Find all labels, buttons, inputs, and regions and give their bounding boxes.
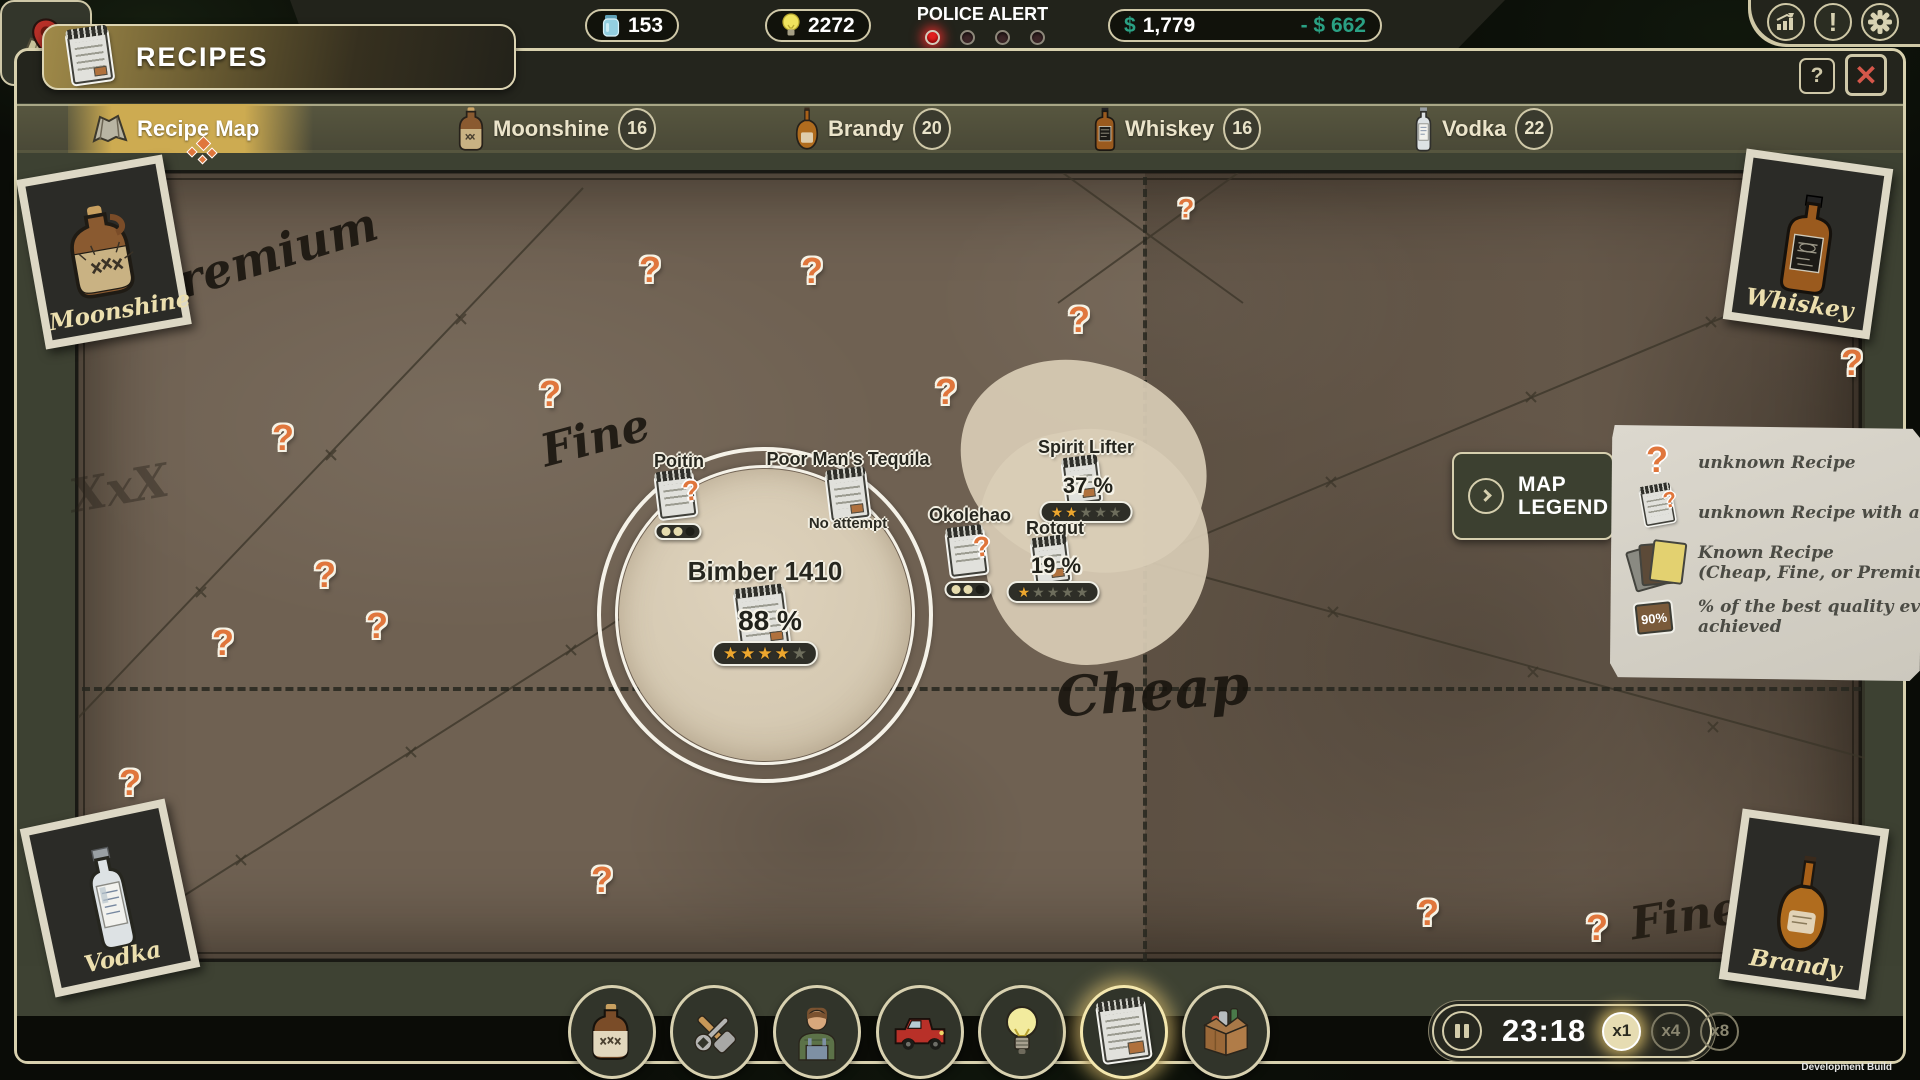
pause-button[interactable] [1442, 1011, 1482, 1051]
toolbar-production-button[interactable] [568, 985, 656, 1079]
toolbar-recipes-button[interactable] [1080, 985, 1168, 1079]
legend-item-text: % of the best quality ever [1698, 597, 1920, 617]
settings-button[interactable] [1861, 3, 1899, 41]
idea-count: 2272 [808, 14, 855, 38]
legend-item-text: (Cheap, Fine, or Premium) [1698, 563, 1920, 583]
clue-recipe-icon[interactable]: ? [946, 529, 987, 577]
window-title-banner: RECIPES [42, 24, 516, 90]
map-icon [92, 113, 128, 145]
unknown-recipe-marker[interactable]: ? [1417, 895, 1439, 931]
map-marker-cluster-icon [188, 136, 224, 166]
tab-label: Whiskey [1125, 116, 1214, 142]
clue-progress-okolehao [945, 581, 992, 598]
speed-x8-button[interactable]: x8 [1700, 1012, 1739, 1051]
unknown-recipe-marker[interactable]: ? [1068, 302, 1090, 338]
question-icon: ? [1646, 439, 1668, 481]
toolbar-staff-button[interactable] [773, 985, 861, 1079]
tab-brandy[interactable]: Brandy 20 [795, 104, 951, 153]
toolbar-vehicles-button[interactable] [876, 985, 964, 1079]
tab-label: Brandy [828, 116, 904, 142]
recipes-notepad-icon [1097, 1001, 1150, 1063]
storage-box-icon [1197, 1005, 1255, 1059]
recipe-quality-rotgut: 19 % [1031, 553, 1081, 579]
stats-icon [1775, 12, 1797, 32]
unknown-recipe-marker[interactable]: ? [539, 376, 561, 412]
unknown-recipe-marker[interactable]: ? [935, 374, 957, 410]
map-corner-card-whiskey: Whiskey [1723, 149, 1893, 340]
map-corner-card-moonshine: Moonshine [16, 154, 192, 349]
build-label: Development Build [1700, 1062, 1906, 1073]
toolbar-ideas-button[interactable] [978, 985, 1066, 1079]
recipe-name-bimber: Bimber 1410 [688, 556, 843, 587]
known-recipe-icon[interactable] [826, 471, 869, 521]
unknown-recipe-marker[interactable]: ? [119, 765, 141, 801]
tab-vodka[interactable]: Vodka 22 [1414, 104, 1553, 153]
tab-count-badge: 22 [1515, 108, 1553, 150]
currency-icon: $ [1124, 14, 1136, 38]
tab-label: Vodka [1442, 116, 1506, 142]
pause-icon [1455, 1024, 1460, 1038]
unknown-recipe-marker[interactable]: ? [591, 862, 613, 898]
moonshine-jug-illustration [60, 198, 148, 305]
legend-item-text: unknown Recipe with a clue [1698, 503, 1920, 523]
clue-icon: ? [1640, 486, 1675, 526]
recipes-notepad-icon [67, 29, 114, 84]
quality-badge: 90% [1640, 609, 1667, 627]
tab-recipe-map[interactable]: Recipe Map [92, 104, 259, 153]
clue-recipe-icon[interactable]: ? [656, 473, 697, 519]
unknown-recipe-marker[interactable]: ? [1178, 196, 1195, 223]
lightbulb-icon [1002, 1003, 1042, 1061]
speed-x1-button[interactable]: x1 [1602, 1012, 1641, 1051]
legend-item-text: achieved [1698, 617, 1782, 637]
legend-button-line1: MAP [1518, 473, 1609, 496]
best-quality-icon: 90% [1635, 601, 1674, 635]
recipe-status: No attempt [809, 515, 887, 532]
recipe-stars-rotgut: ★★★★★ [1007, 581, 1100, 603]
toolbar-equipment-button[interactable] [670, 985, 758, 1079]
unknown-recipe-marker[interactable]: ? [366, 608, 388, 644]
unknown-recipe-marker[interactable]: ? [1841, 345, 1863, 381]
tools-icon [686, 1004, 742, 1060]
jug-icon [591, 1003, 633, 1061]
stats-button[interactable] [1767, 3, 1805, 41]
help-icon: ? [1811, 64, 1824, 88]
moonshine-bottle-icon [458, 106, 484, 152]
legend-item-text: unknown Recipe [1698, 453, 1856, 473]
time-controls: 23:18 x1 x4 x8 [1432, 1004, 1712, 1058]
recipe-map[interactable]: Premium Fine Cheap Fine XxX ? ? ? ? ? ? … [75, 170, 1862, 962]
map-corner-card-brandy: Brandy [1719, 809, 1889, 1000]
unknown-recipe-marker[interactable]: ? [272, 420, 294, 456]
recipe-quality-bimber: 88 % [738, 605, 802, 637]
tab-moonshine[interactable]: Moonshine 16 [458, 104, 656, 153]
speed-x4-button[interactable]: x4 [1651, 1012, 1690, 1051]
cash-delta: - $ 662 [1301, 14, 1366, 38]
legend-button-line2: LEGEND [1518, 496, 1609, 519]
recipe-name-okolehao: Okolehao [929, 505, 1011, 526]
unknown-recipe-marker[interactable]: ? [1586, 910, 1608, 946]
truck-icon [890, 1010, 950, 1054]
map-divider-horizontal [82, 687, 1861, 691]
jar-icon [601, 14, 621, 38]
brandy-bottle-illustration [1769, 851, 1838, 958]
cash-amount: 1,779 [1143, 14, 1196, 38]
clue-progress-poitin [655, 523, 702, 540]
window-title: RECIPES [136, 42, 269, 73]
tab-count-badge: 20 [913, 108, 951, 150]
exclamation-icon: ! [1829, 7, 1838, 38]
whiskey-bottle-icon [1094, 106, 1116, 152]
police-alert-lights [925, 30, 1045, 45]
jar-count: 153 [628, 14, 663, 38]
game-clock: 23:18 [1502, 1013, 1586, 1049]
legend-item-text: Known Recipe [1698, 543, 1834, 563]
money-pill: $ 1,779 - $ 662 [1108, 9, 1382, 42]
recipe-stars-bimber: ★★★★★ [712, 641, 818, 666]
close-button[interactable]: ✕ [1845, 54, 1887, 96]
unknown-recipe-marker[interactable]: ? [212, 625, 234, 661]
tab-count-badge: 16 [618, 108, 656, 150]
jar-count-pill: 153 [585, 9, 679, 42]
gear-icon [1867, 9, 1893, 35]
close-icon: ✕ [1854, 59, 1877, 92]
worker-icon [790, 1003, 844, 1061]
map-legend-button[interactable]: MAP LEGEND [1452, 452, 1614, 540]
game-screen: 153 2272 POLICE ALERT $ 1,779 - $ 662 ! [0, 0, 1920, 1080]
help-button[interactable]: ? [1799, 58, 1835, 94]
vodka-bottle-icon [1414, 106, 1433, 152]
map-legend-panel: ? unknown Recipe ? unknown Recipe with a… [1610, 425, 1920, 681]
brandy-bottle-icon [795, 106, 819, 152]
recipe-quality-spirit-lifter: 37 % [1063, 473, 1113, 499]
police-alert-label: POLICE ALERT [900, 4, 1065, 25]
toolbar-storage-button[interactable] [1182, 985, 1270, 1079]
vodka-bottle-illustration [78, 843, 143, 954]
unknown-recipe-marker[interactable]: ? [801, 253, 823, 289]
tab-count-badge: 16 [1223, 108, 1261, 150]
lightbulb-icon [781, 13, 801, 39]
unknown-recipe-marker[interactable]: ? [639, 252, 661, 288]
tab-label: Moonshine [493, 116, 609, 142]
alerts-button[interactable]: ! [1814, 3, 1852, 41]
whiskey-bottle-illustration [1775, 191, 1840, 297]
unknown-recipe-marker[interactable]: ? [314, 557, 336, 593]
idea-count-pill: 2272 [765, 9, 871, 42]
chevron-right-icon [1468, 478, 1504, 514]
region-label-cheap: Cheap [1054, 651, 1251, 729]
tab-whiskey[interactable]: Whiskey 16 [1094, 104, 1261, 153]
